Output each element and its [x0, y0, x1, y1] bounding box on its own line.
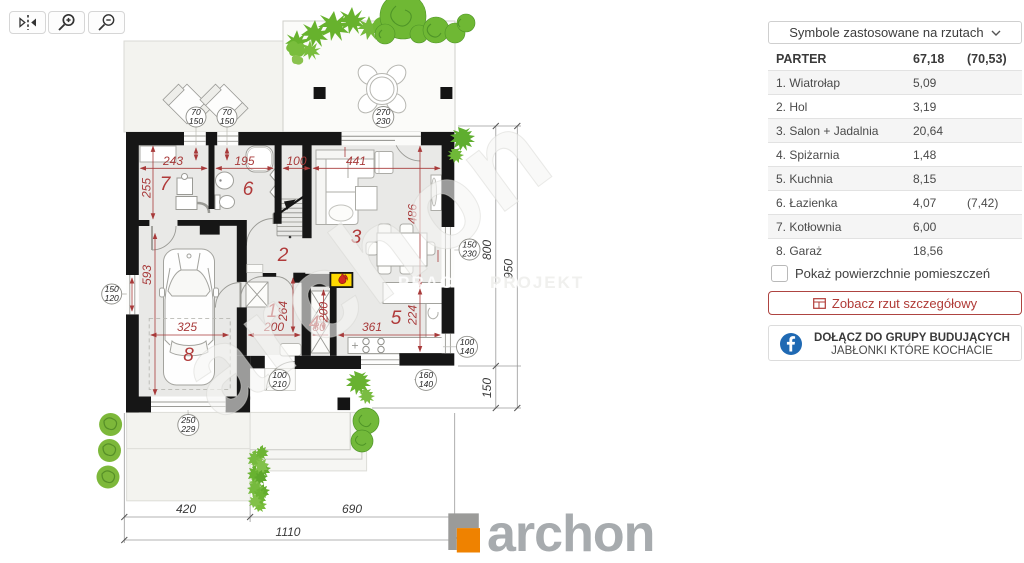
svg-text:593: 593	[140, 265, 154, 285]
svg-text:140: 140	[419, 379, 433, 389]
svg-text:150: 150	[480, 378, 494, 398]
svg-text:100: 100	[286, 154, 306, 168]
svg-text:archon: archon	[487, 505, 654, 563]
svg-text:140: 140	[460, 346, 474, 356]
svg-text:150: 150	[189, 116, 203, 126]
svg-text:230: 230	[375, 116, 390, 126]
svg-text:120: 120	[105, 293, 119, 303]
svg-text:150: 150	[220, 116, 234, 126]
svg-text:420: 420	[176, 502, 196, 516]
svg-text:255: 255	[140, 178, 154, 199]
svg-text:229: 229	[180, 424, 195, 434]
svg-text:210: 210	[271, 379, 286, 389]
svg-text:PROJEKT: PROJEKT	[490, 273, 584, 292]
svg-text:243: 243	[162, 154, 183, 168]
svg-text:441: 441	[346, 154, 366, 168]
svg-text:690: 690	[342, 502, 362, 516]
svg-text:195: 195	[234, 154, 254, 168]
svg-text:230: 230	[461, 249, 476, 259]
svg-text:6: 6	[243, 179, 254, 200]
svg-text:7: 7	[160, 174, 172, 195]
svg-text:1110: 1110	[276, 525, 301, 539]
